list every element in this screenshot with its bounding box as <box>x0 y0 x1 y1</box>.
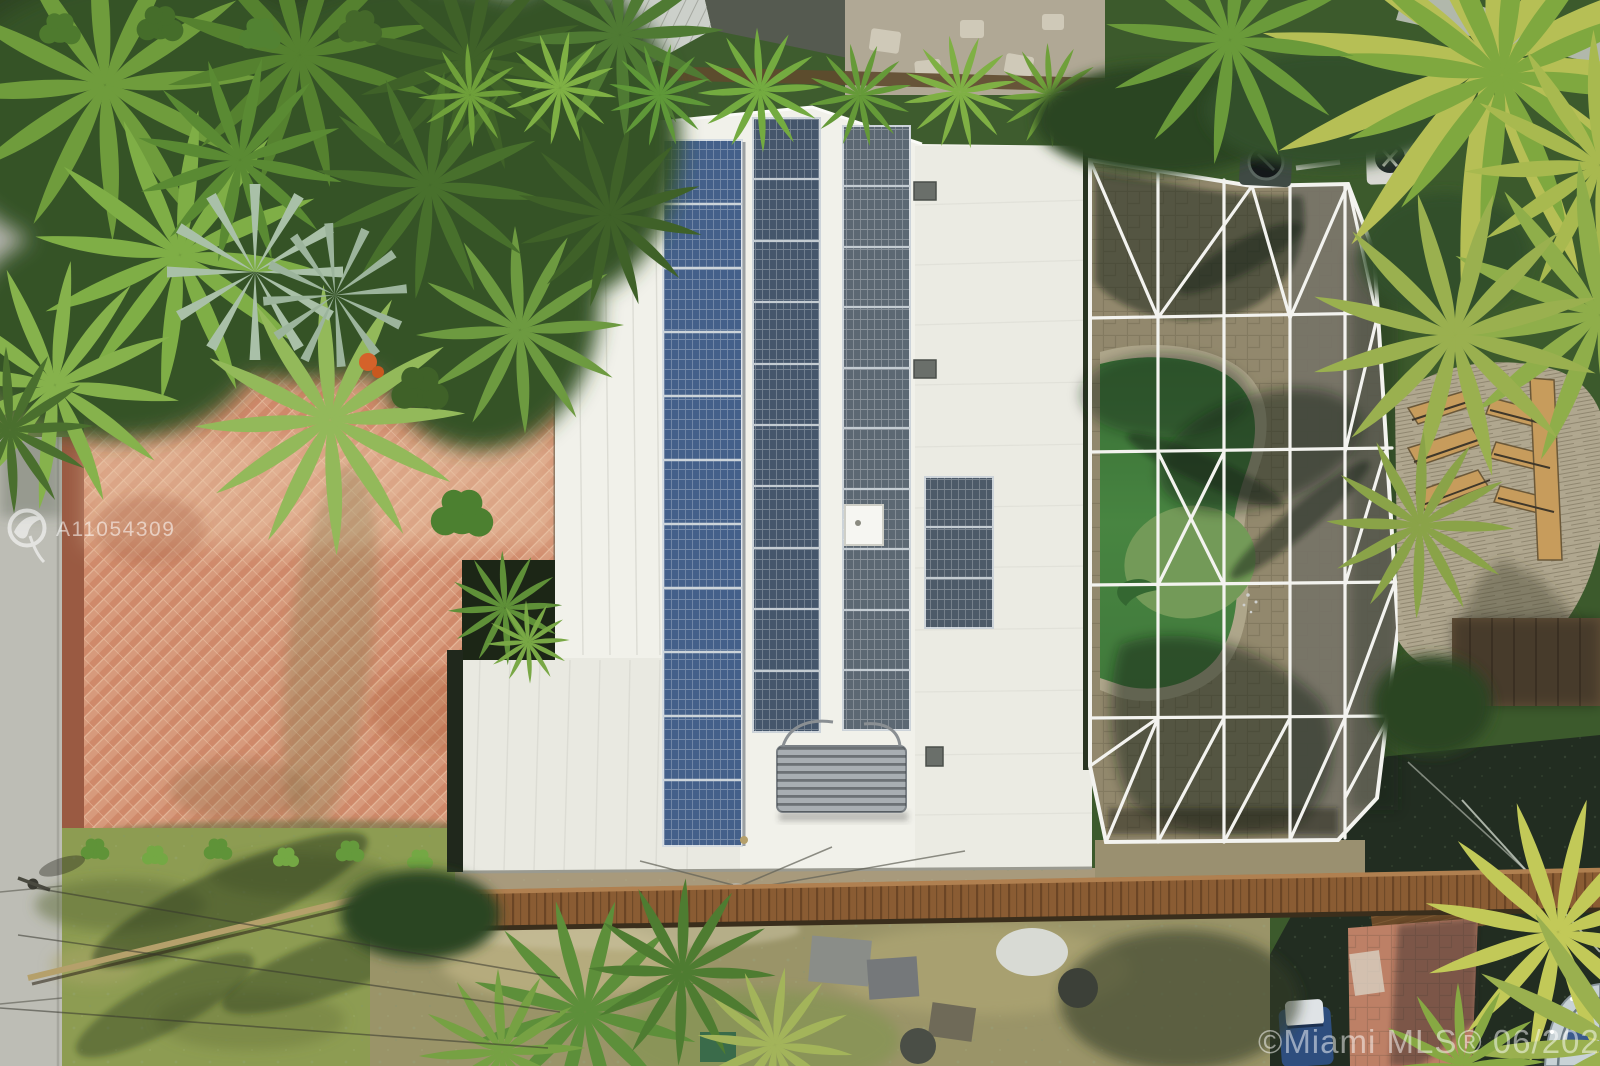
yard-box <box>808 935 872 986</box>
grill <box>1058 968 1098 1008</box>
solar-array-middle <box>753 118 820 732</box>
yard-crate <box>928 1002 976 1042</box>
solar-panel-cluster <box>925 477 993 628</box>
solar-array-left <box>663 140 744 846</box>
roof-gap-shadow <box>447 650 463 872</box>
solar-array-right <box>843 126 910 730</box>
screen-mesh-tint <box>1090 160 1398 842</box>
yard-box <box>867 956 920 999</box>
skylight <box>845 505 883 545</box>
watermark-copyright: ©Miami MLS® 06/2021. <box>1258 1023 1600 1060</box>
aerial-photo: A11054309 ©Miami MLS® 06/2021. <box>0 0 1600 1066</box>
white-tarp <box>996 928 1068 976</box>
watermark-listing-id: A11054309 <box>56 518 175 541</box>
dark-shrub-mass <box>340 870 500 960</box>
orange-flowers <box>372 366 384 378</box>
yard-drum <box>900 1028 936 1064</box>
roof-pipe <box>740 836 748 844</box>
